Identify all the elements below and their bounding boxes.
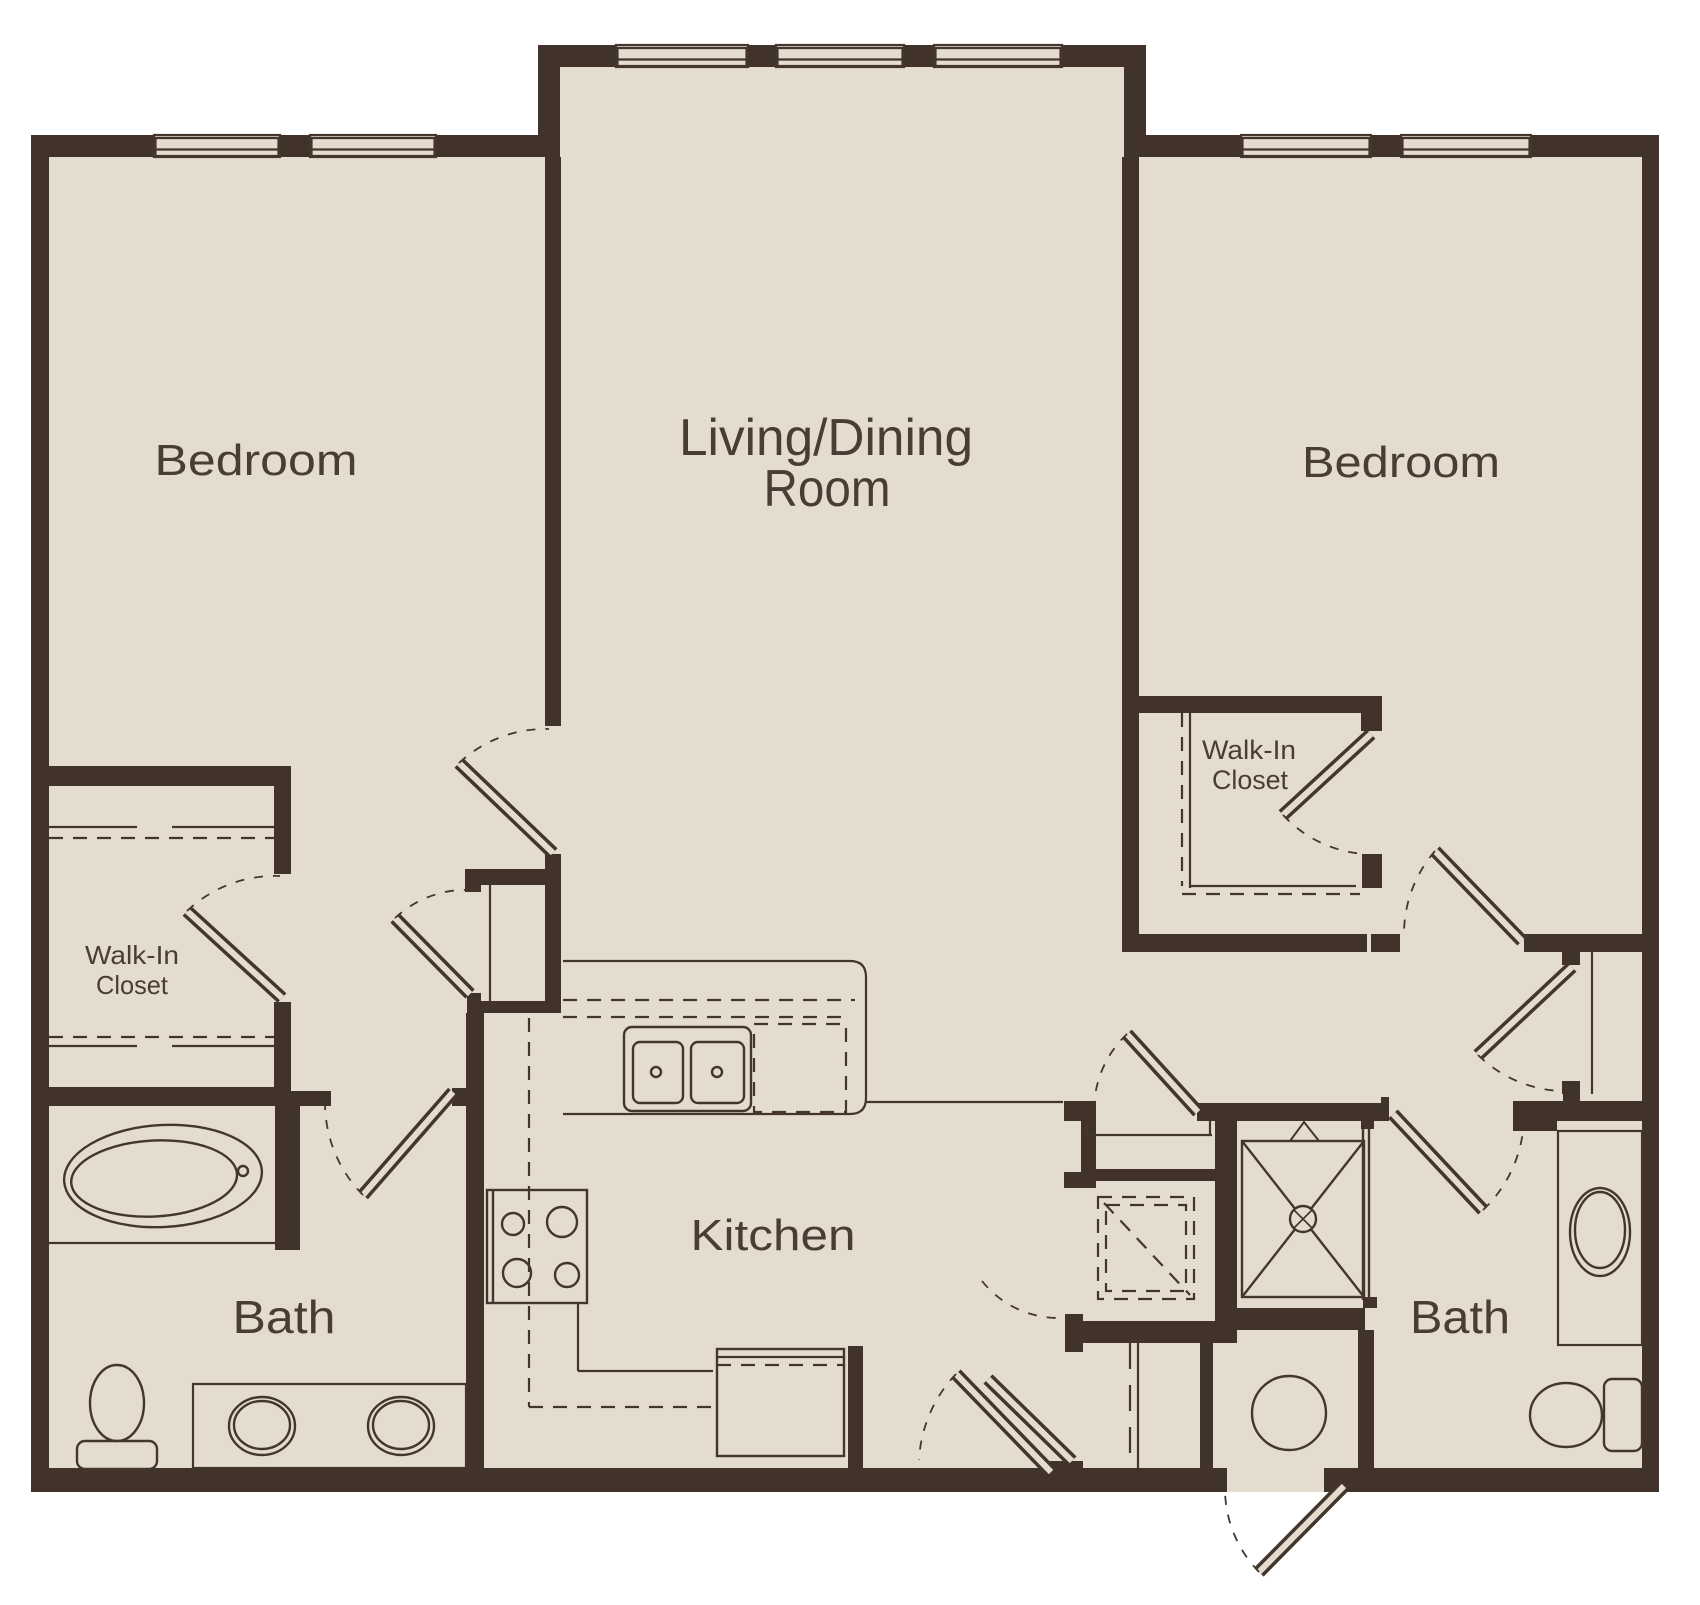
svg-text:Bath: Bath <box>1410 1291 1510 1343</box>
svg-text:Bath: Bath <box>233 1291 336 1343</box>
svg-text:Walk-In: Walk-In <box>85 940 179 970</box>
svg-text:Closet: Closet <box>96 970 169 1000</box>
svg-text:Living/Dining: Living/Dining <box>679 409 973 467</box>
svg-text:Kitchen: Kitchen <box>691 1211 856 1260</box>
svg-text:Closet: Closet <box>1212 765 1288 795</box>
svg-text:Room: Room <box>764 460 891 518</box>
svg-text:Walk-In: Walk-In <box>1202 735 1296 765</box>
svg-text:Bedroom: Bedroom <box>1302 438 1500 487</box>
svg-text:Bedroom: Bedroom <box>155 436 358 485</box>
